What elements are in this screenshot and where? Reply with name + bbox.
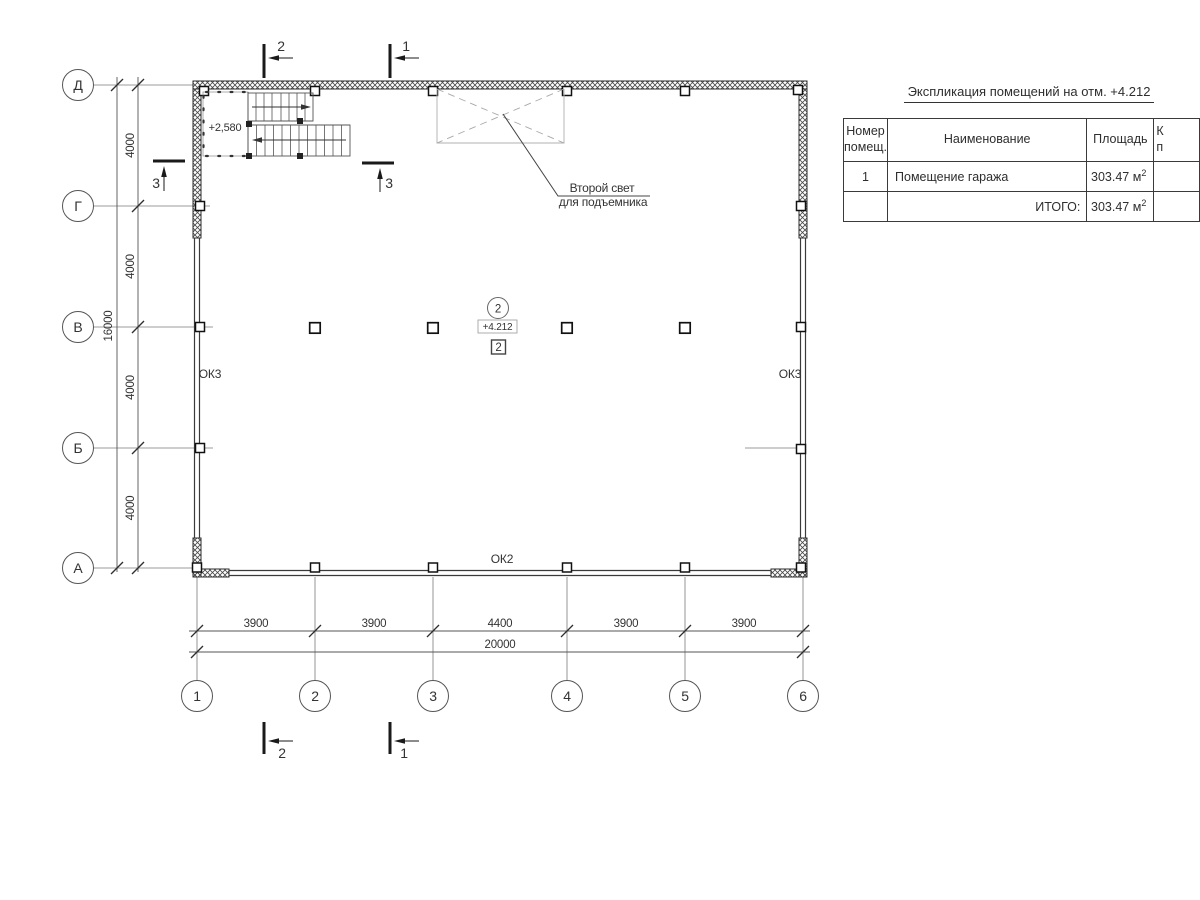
- room-marks: 2 +4.212 2: [478, 298, 517, 355]
- dim-h-segment: 4400: [488, 618, 513, 630]
- annotation-line1: Второй свет: [570, 181, 636, 195]
- stair-arrow-down-icon: [252, 137, 262, 143]
- section-arrow-icon: [268, 738, 279, 744]
- cell-empty: [1154, 192, 1200, 222]
- section-label-side-left: 3: [152, 175, 160, 191]
- cell-total-area: 303.47 м2: [1087, 192, 1154, 222]
- header-category: К п: [1154, 119, 1200, 162]
- window-walls: [195, 238, 806, 576]
- axis-row-label: Б: [74, 440, 83, 456]
- axis-col-label: 1: [193, 688, 201, 704]
- dim-v-segment: 4000: [125, 375, 137, 400]
- stairs-level-label: +2,580: [209, 122, 242, 134]
- section-label-bottom-left: 2: [278, 745, 286, 761]
- axis-col-label: 5: [681, 688, 689, 704]
- header-room-number: Номер помещ.: [844, 119, 888, 162]
- dim-h-segment: 3900: [614, 618, 639, 630]
- dim-h-segment: 3900: [362, 618, 387, 630]
- wall-left-upper: [193, 89, 201, 238]
- section-markers: 2 1 2 1 3 3: [152, 38, 419, 761]
- table-total-row: ИТОГО: 303.47 м2: [844, 192, 1200, 222]
- stair-posts: [246, 118, 303, 159]
- header-name: Наименование: [888, 119, 1087, 162]
- cell-total-label: ИТОГО:: [888, 192, 1087, 222]
- explication-table: Номер помещ. Наименование Площадь К п 1 …: [843, 118, 1200, 222]
- axis-row-label: А: [73, 560, 83, 576]
- section-arrow-icon: [394, 55, 405, 61]
- section-label-top-right: 1: [402, 38, 410, 54]
- window-labels: ОК3 ОК3 ОК2: [199, 367, 802, 566]
- dim-v-segment: 4000: [125, 254, 137, 279]
- room-number-box: 2: [495, 342, 501, 354]
- dim-v-segment: 4000: [125, 133, 137, 158]
- stairs: +2,580: [203, 92, 350, 159]
- axis-col-label: 2: [311, 688, 319, 704]
- cell-room-category: [1154, 162, 1200, 192]
- axis-col-label: 6: [799, 688, 807, 704]
- axis-bubbles: Д Г В Б А 1 2 3 4 5 6: [63, 70, 819, 712]
- axis-row-label: Г: [74, 198, 82, 214]
- header-area: Площадь: [1087, 119, 1154, 162]
- cell-empty: [844, 192, 888, 222]
- section-label-side-stairs: 3: [385, 175, 393, 191]
- stair-arrow-up-icon: [301, 104, 311, 110]
- floor-plan-sheet: +2,580 Второй свет для подъемника ОК3 ОК…: [0, 0, 1200, 900]
- table-row: 1 Помещение гаража 303.47 м2: [844, 162, 1200, 192]
- axis-row-label: Д: [73, 77, 83, 93]
- annotation-line2: для подъемника: [559, 195, 648, 209]
- cell-room-area: 303.47 м2: [1087, 162, 1154, 192]
- dim-h-total: 20000: [485, 639, 516, 651]
- explication-title: Экспликация помещений на отм. +4.212: [904, 84, 1155, 103]
- axis-row-label: В: [73, 319, 82, 335]
- window-label-left: ОК3: [199, 367, 222, 381]
- wall-top: [193, 81, 807, 89]
- explication-title-wrap: Экспликация помещений на отм. +4.212: [843, 84, 1200, 103]
- section-label-bottom-right: 1: [400, 745, 408, 761]
- room-level-mark: +4.212: [483, 322, 513, 333]
- window-label-right: ОК3: [779, 367, 802, 381]
- section-arrow-icon: [394, 738, 405, 744]
- wall-right-upper: [799, 89, 807, 238]
- floor-opening: Второй свет для подъемника: [437, 89, 650, 209]
- section-arrow-icon: [161, 166, 167, 177]
- cell-room-name: Помещение гаража: [888, 162, 1087, 192]
- section-arrow-icon: [377, 168, 383, 179]
- dim-h-segment: 3900: [244, 618, 269, 630]
- dim-v-segment: 4000: [125, 496, 137, 521]
- window-label-bottom: ОК2: [491, 552, 514, 566]
- dim-v-total: 16000: [103, 311, 115, 342]
- section-label-top-left: 2: [277, 38, 285, 54]
- dim-h-segment: 3900: [732, 618, 757, 630]
- cell-room-number: 1: [844, 162, 888, 192]
- axis-col-label: 4: [563, 688, 571, 704]
- section-arrow-icon: [268, 55, 279, 61]
- room-number-circle: 2: [495, 304, 501, 316]
- axis-col-label: 3: [429, 688, 437, 704]
- table-header-row: Номер помещ. Наименование Площадь К п: [844, 119, 1200, 162]
